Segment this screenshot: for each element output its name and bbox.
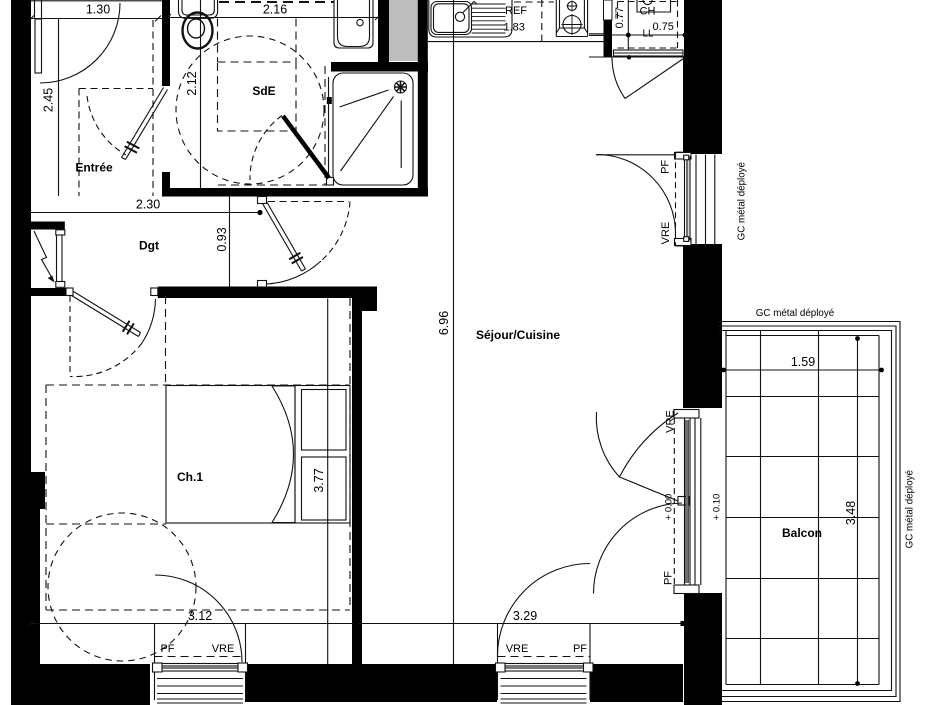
svg-text:3.77: 3.77 (312, 468, 326, 492)
svg-text:+ 0.10: + 0.10 (712, 494, 723, 521)
svg-text:0.75: 0.75 (653, 21, 674, 33)
svg-text:GC métal déployé: GC métal déployé (736, 161, 747, 240)
svg-text:PF: PF (573, 643, 587, 655)
svg-text:3.12: 3.12 (188, 609, 212, 623)
svg-text:GC métal déployé: GC métal déployé (756, 308, 835, 319)
svg-text:Ch.1: Ch.1 (177, 470, 203, 484)
svg-text:Séjour/Cuisine: Séjour/Cuisine (476, 328, 560, 342)
svg-text:1.59: 1.59 (791, 355, 815, 369)
svg-text:PF: PF (662, 571, 674, 585)
svg-text:Entrée: Entrée (75, 161, 113, 175)
svg-text:VRE: VRE (660, 222, 672, 245)
svg-text:VRE: VRE (212, 643, 235, 655)
svg-text:PF: PF (160, 643, 174, 655)
svg-text:1.83: 1.83 (504, 22, 525, 34)
svg-text:2.45: 2.45 (42, 88, 56, 112)
svg-text:VRE: VRE (664, 410, 676, 433)
svg-text:1.30: 1.30 (86, 3, 110, 17)
svg-text:CH: CH (640, 6, 656, 18)
svg-text:2.30: 2.30 (136, 198, 160, 212)
svg-text:6.96: 6.96 (437, 311, 451, 335)
svg-text:SdE: SdE (252, 84, 275, 98)
svg-text:0.93: 0.93 (215, 227, 229, 251)
svg-text:3.48: 3.48 (844, 501, 858, 525)
svg-text:+ 0.00: + 0.00 (663, 494, 674, 521)
svg-text:PF: PF (659, 160, 671, 174)
svg-text:2.16: 2.16 (263, 3, 287, 17)
svg-text:Balcon: Balcon (782, 526, 822, 540)
svg-text:3.29: 3.29 (513, 609, 537, 623)
svg-text:2.12: 2.12 (185, 71, 199, 95)
svg-text:0.77: 0.77 (614, 7, 626, 28)
svg-text:Dgt: Dgt (139, 239, 159, 253)
svg-text:VRE: VRE (506, 643, 529, 655)
svg-text:REF: REF (505, 5, 527, 17)
svg-text:GC métal déployé: GC métal déployé (905, 469, 916, 548)
